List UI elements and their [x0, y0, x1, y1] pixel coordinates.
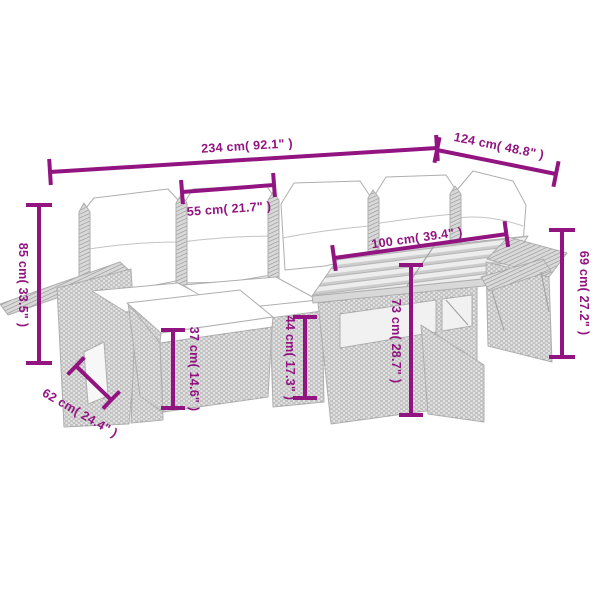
sofa-base-middle — [270, 311, 324, 407]
dim-label-total-height: 85 cm( 33.5" ) — [16, 243, 30, 327]
dim-label-footstool-height: 37 cm( 14.6" ) — [187, 327, 201, 411]
dim-label-right-height: 69 cm( 27.2" ) — [577, 251, 591, 335]
dim-label-table-height: 73 cm( 28.7" ) — [389, 299, 403, 383]
furniture-line-art — [0, 0, 600, 600]
right-armrest — [486, 237, 567, 362]
dim-label-seat-height: 44 cm( 17.3" ) — [283, 316, 297, 400]
product-dimension-diagram: 234 cm( 92.1" ) 124 cm( 48.8" ) 55 cm( 2… — [0, 0, 600, 600]
